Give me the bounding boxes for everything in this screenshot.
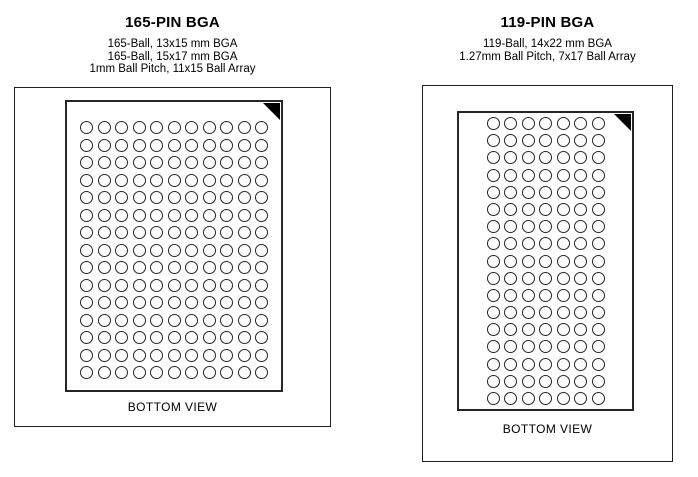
solder-ball: [98, 296, 111, 309]
solder-ball: [238, 191, 251, 204]
solder-ball: [168, 261, 181, 274]
solder-ball: [504, 237, 517, 250]
solder-ball: [574, 340, 587, 353]
solder-ball: [220, 156, 233, 169]
solder-ball: [185, 314, 198, 327]
solder-ball: [557, 340, 570, 353]
solder-ball: [133, 139, 146, 152]
solder-ball: [238, 296, 251, 309]
solder-ball: [574, 392, 587, 405]
solder-ball: [98, 244, 111, 257]
solder-ball: [133, 226, 146, 239]
solder-ball: [574, 169, 587, 182]
pin1-marker-icon: [263, 103, 280, 120]
solder-ball: [185, 279, 198, 292]
solder-ball: [255, 366, 268, 379]
solder-ball: [557, 220, 570, 233]
solder-ball: [115, 226, 128, 239]
solder-ball: [522, 169, 535, 182]
solder-ball: [133, 121, 146, 134]
solder-ball: [539, 340, 552, 353]
solder-ball: [592, 169, 605, 182]
solder-ball: [574, 323, 587, 336]
solder-ball: [150, 209, 163, 222]
solder-ball: [539, 237, 552, 250]
solder-ball: [203, 331, 216, 344]
solder-ball: [592, 117, 605, 130]
solder-ball: [150, 279, 163, 292]
bga-119-subtitle-line: 1.27mm Ball Pitch, 7x17 Ball Array: [422, 51, 673, 64]
bga-165-subtitle-line: 165-Ball, 15x17 mm BGA: [14, 51, 331, 64]
solder-ball: [255, 331, 268, 344]
solder-ball: [522, 255, 535, 268]
solder-ball: [487, 289, 500, 302]
solder-ball: [203, 261, 216, 274]
solder-ball: [133, 366, 146, 379]
solder-ball: [255, 139, 268, 152]
solder-ball: [574, 358, 587, 371]
solder-ball: [592, 255, 605, 268]
solder-ball: [80, 314, 93, 327]
solder-ball: [487, 151, 500, 164]
solder-ball: [539, 306, 552, 319]
solder-ball: [557, 272, 570, 285]
solder-ball: [574, 306, 587, 319]
solder-ball: [80, 349, 93, 362]
solder-ball: [80, 296, 93, 309]
solder-ball: [574, 255, 587, 268]
solder-ball: [487, 392, 500, 405]
solder-ball: [203, 174, 216, 187]
solder-ball: [539, 392, 552, 405]
bga-119-subtitle-line: 119-Ball, 14x22 mm BGA: [422, 38, 673, 51]
solder-ball: [557, 306, 570, 319]
solder-ball: [487, 117, 500, 130]
solder-ball: [522, 358, 535, 371]
solder-ball: [168, 156, 181, 169]
solder-ball: [185, 261, 198, 274]
solder-ball: [522, 375, 535, 388]
solder-ball: [168, 121, 181, 134]
solder-ball: [168, 279, 181, 292]
solder-ball: [80, 121, 93, 134]
solder-ball: [133, 331, 146, 344]
solder-ball: [522, 237, 535, 250]
solder-ball: [168, 331, 181, 344]
solder-ball: [133, 314, 146, 327]
solder-ball: [592, 272, 605, 285]
solder-ball: [98, 139, 111, 152]
solder-ball: [98, 366, 111, 379]
solder-ball: [150, 174, 163, 187]
solder-ball: [150, 121, 163, 134]
bga-165-title: 165-PIN BGA: [14, 14, 331, 31]
solder-ball: [592, 203, 605, 216]
solder-ball: [80, 209, 93, 222]
solder-ball: [203, 226, 216, 239]
solder-ball: [80, 261, 93, 274]
bga-165-ball-grid: [67, 121, 281, 379]
solder-ball: [80, 139, 93, 152]
solder-ball: [255, 191, 268, 204]
solder-ball: [238, 139, 251, 152]
solder-ball: [80, 366, 93, 379]
solder-ball: [133, 191, 146, 204]
solder-ball: [238, 226, 251, 239]
solder-ball: [133, 209, 146, 222]
solder-ball: [539, 203, 552, 216]
solder-ball: [115, 331, 128, 344]
solder-ball: [150, 366, 163, 379]
solder-ball: [574, 186, 587, 199]
solder-ball: [185, 156, 198, 169]
solder-ball: [255, 261, 268, 274]
solder-ball: [150, 156, 163, 169]
solder-ball: [203, 349, 216, 362]
solder-ball: [98, 314, 111, 327]
datasheet-page: 165-PIN BGA 165-Ball, 13x15 mm BGA 165-B…: [0, 0, 698, 477]
solder-ball: [150, 314, 163, 327]
solder-ball: [168, 191, 181, 204]
solder-ball: [220, 349, 233, 362]
bga-165-subtitle-line: 1mm Ball Pitch, 11x15 Ball Array: [14, 63, 331, 76]
solder-ball: [115, 121, 128, 134]
solder-ball: [487, 340, 500, 353]
solder-ball: [487, 220, 500, 233]
solder-ball: [574, 237, 587, 250]
solder-ball: [98, 121, 111, 134]
bga-165-subtitle-line: 165-Ball, 13x15 mm BGA: [14, 38, 331, 51]
solder-ball: [80, 226, 93, 239]
solder-ball: [115, 261, 128, 274]
solder-ball: [150, 191, 163, 204]
solder-ball: [522, 392, 535, 405]
solder-ball: [504, 203, 517, 216]
solder-ball: [185, 174, 198, 187]
solder-ball: [539, 186, 552, 199]
solder-ball: [557, 237, 570, 250]
solder-ball: [487, 375, 500, 388]
solder-ball: [592, 151, 605, 164]
solder-ball: [504, 358, 517, 371]
solder-ball: [592, 186, 605, 199]
solder-ball: [203, 296, 216, 309]
solder-ball: [220, 174, 233, 187]
solder-ball: [168, 139, 181, 152]
solder-ball: [150, 261, 163, 274]
solder-ball: [557, 134, 570, 147]
solder-ball: [504, 117, 517, 130]
solder-ball: [539, 220, 552, 233]
solder-ball: [574, 117, 587, 130]
solder-ball: [80, 279, 93, 292]
solder-ball: [185, 296, 198, 309]
solder-ball: [238, 156, 251, 169]
solder-ball: [255, 244, 268, 257]
solder-ball: [238, 244, 251, 257]
solder-ball: [522, 289, 535, 302]
solder-ball: [133, 244, 146, 257]
solder-ball: [80, 156, 93, 169]
solder-ball: [203, 139, 216, 152]
solder-ball: [539, 358, 552, 371]
solder-ball: [220, 121, 233, 134]
solder-ball: [220, 296, 233, 309]
solder-ball: [185, 244, 198, 257]
solder-ball: [98, 209, 111, 222]
solder-ball: [185, 349, 198, 362]
solder-ball: [220, 366, 233, 379]
solder-ball: [255, 156, 268, 169]
solder-ball: [115, 191, 128, 204]
solder-ball: [80, 191, 93, 204]
solder-ball: [203, 209, 216, 222]
solder-ball: [150, 139, 163, 152]
solder-ball: [238, 279, 251, 292]
solder-ball: [220, 261, 233, 274]
solder-ball: [574, 272, 587, 285]
solder-ball: [98, 261, 111, 274]
solder-ball: [487, 203, 500, 216]
solder-ball: [592, 340, 605, 353]
solder-ball: [150, 349, 163, 362]
solder-ball: [203, 191, 216, 204]
solder-ball: [133, 296, 146, 309]
bga-119-header: 119-PIN BGA 119-Ball, 14x22 mm BGA 1.27m…: [422, 14, 673, 63]
solder-ball: [238, 331, 251, 344]
bga-165-header: 165-PIN BGA 165-Ball, 13x15 mm BGA 165-B…: [14, 14, 331, 76]
solder-ball: [557, 392, 570, 405]
solder-ball: [255, 279, 268, 292]
solder-ball: [185, 226, 198, 239]
solder-ball: [255, 226, 268, 239]
solder-ball: [592, 134, 605, 147]
solder-ball: [539, 255, 552, 268]
solder-ball: [238, 121, 251, 134]
solder-ball: [504, 340, 517, 353]
solder-ball: [539, 169, 552, 182]
solder-ball: [98, 279, 111, 292]
solder-ball: [133, 156, 146, 169]
solder-ball: [574, 203, 587, 216]
solder-ball: [168, 296, 181, 309]
solder-ball: [168, 314, 181, 327]
solder-ball: [220, 191, 233, 204]
solder-ball: [592, 323, 605, 336]
solder-ball: [220, 279, 233, 292]
solder-ball: [539, 272, 552, 285]
solder-ball: [504, 186, 517, 199]
solder-ball: [504, 392, 517, 405]
solder-ball: [504, 323, 517, 336]
solder-ball: [168, 209, 181, 222]
solder-ball: [522, 272, 535, 285]
solder-ball: [539, 323, 552, 336]
bga-119-package-outline: BOTTOM VIEW: [422, 85, 673, 462]
solder-ball: [255, 349, 268, 362]
solder-ball: [80, 244, 93, 257]
solder-ball: [487, 272, 500, 285]
solder-ball: [522, 306, 535, 319]
solder-ball: [557, 289, 570, 302]
solder-ball: [592, 375, 605, 388]
solder-ball: [487, 323, 500, 336]
solder-ball: [255, 209, 268, 222]
solder-ball: [203, 314, 216, 327]
solder-ball: [133, 279, 146, 292]
solder-ball: [238, 261, 251, 274]
solder-ball: [592, 358, 605, 371]
solder-ball: [220, 226, 233, 239]
solder-ball: [115, 279, 128, 292]
solder-ball: [115, 296, 128, 309]
solder-ball: [487, 134, 500, 147]
bga-119-bottom-view-label: BOTTOM VIEW: [423, 422, 672, 436]
solder-ball: [168, 226, 181, 239]
solder-ball: [504, 220, 517, 233]
solder-ball: [574, 220, 587, 233]
solder-ball: [168, 174, 181, 187]
solder-ball: [557, 117, 570, 130]
solder-ball: [203, 279, 216, 292]
solder-ball: [539, 117, 552, 130]
solder-ball: [557, 203, 570, 216]
solder-ball: [168, 349, 181, 362]
solder-ball: [504, 289, 517, 302]
solder-ball: [220, 331, 233, 344]
solder-ball: [238, 349, 251, 362]
solder-ball: [115, 366, 128, 379]
solder-ball: [98, 191, 111, 204]
solder-ball: [504, 134, 517, 147]
bga-119-title: 119-PIN BGA: [422, 14, 673, 31]
solder-ball: [574, 134, 587, 147]
solder-ball: [150, 296, 163, 309]
solder-ball: [522, 134, 535, 147]
solder-ball: [487, 358, 500, 371]
solder-ball: [185, 366, 198, 379]
bga-165-bottom-view-label: BOTTOM VIEW: [15, 400, 330, 414]
bga-119-ball-array-area: [457, 111, 634, 411]
solder-ball: [255, 121, 268, 134]
solder-ball: [255, 174, 268, 187]
bga-165-ball-array-area: [65, 100, 283, 392]
solder-ball: [220, 314, 233, 327]
solder-ball: [487, 169, 500, 182]
solder-ball: [133, 174, 146, 187]
solder-ball: [504, 375, 517, 388]
solder-ball: [504, 255, 517, 268]
solder-ball: [487, 237, 500, 250]
solder-ball: [592, 220, 605, 233]
solder-ball: [539, 375, 552, 388]
solder-ball: [203, 156, 216, 169]
solder-ball: [522, 220, 535, 233]
solder-ball: [557, 375, 570, 388]
solder-ball: [115, 174, 128, 187]
solder-ball: [522, 117, 535, 130]
solder-ball: [504, 306, 517, 319]
solder-ball: [98, 174, 111, 187]
solder-ball: [557, 323, 570, 336]
solder-ball: [185, 191, 198, 204]
solder-ball: [238, 366, 251, 379]
solder-ball: [115, 139, 128, 152]
solder-ball: [115, 314, 128, 327]
solder-ball: [80, 174, 93, 187]
solder-ball: [238, 314, 251, 327]
solder-ball: [255, 296, 268, 309]
solder-ball: [98, 331, 111, 344]
solder-ball: [168, 366, 181, 379]
solder-ball: [487, 255, 500, 268]
solder-ball: [150, 226, 163, 239]
solder-ball: [238, 174, 251, 187]
solder-ball: [203, 244, 216, 257]
solder-ball: [98, 349, 111, 362]
solder-ball: [557, 358, 570, 371]
solder-ball: [133, 349, 146, 362]
solder-ball: [238, 209, 251, 222]
solder-ball: [203, 366, 216, 379]
solder-ball: [557, 169, 570, 182]
solder-ball: [115, 244, 128, 257]
solder-ball: [522, 186, 535, 199]
solder-ball: [592, 306, 605, 319]
solder-ball: [115, 156, 128, 169]
solder-ball: [522, 323, 535, 336]
solder-ball: [574, 151, 587, 164]
solder-ball: [98, 226, 111, 239]
solder-ball: [80, 331, 93, 344]
solder-ball: [574, 375, 587, 388]
solder-ball: [115, 349, 128, 362]
solder-ball: [539, 289, 552, 302]
solder-ball: [115, 209, 128, 222]
solder-ball: [185, 139, 198, 152]
solder-ball: [504, 151, 517, 164]
solder-ball: [185, 209, 198, 222]
solder-ball: [557, 255, 570, 268]
solder-ball: [504, 169, 517, 182]
solder-ball: [185, 121, 198, 134]
solder-ball: [539, 151, 552, 164]
solder-ball: [522, 151, 535, 164]
solder-ball: [522, 203, 535, 216]
solder-ball: [220, 209, 233, 222]
solder-ball: [220, 244, 233, 257]
solder-ball: [150, 331, 163, 344]
solder-ball: [203, 121, 216, 134]
solder-ball: [592, 289, 605, 302]
solder-ball: [592, 237, 605, 250]
solder-ball: [255, 314, 268, 327]
solder-ball: [98, 156, 111, 169]
bga-119-ball-grid: [459, 117, 632, 405]
solder-ball: [487, 306, 500, 319]
solder-ball: [133, 261, 146, 274]
solder-ball: [487, 186, 500, 199]
solder-ball: [522, 340, 535, 353]
solder-ball: [220, 139, 233, 152]
solder-ball: [557, 186, 570, 199]
bga-165-package-outline: BOTTOM VIEW: [14, 87, 331, 427]
solder-ball: [168, 244, 181, 257]
solder-ball: [150, 244, 163, 257]
solder-ball: [557, 151, 570, 164]
solder-ball: [539, 134, 552, 147]
solder-ball: [574, 289, 587, 302]
